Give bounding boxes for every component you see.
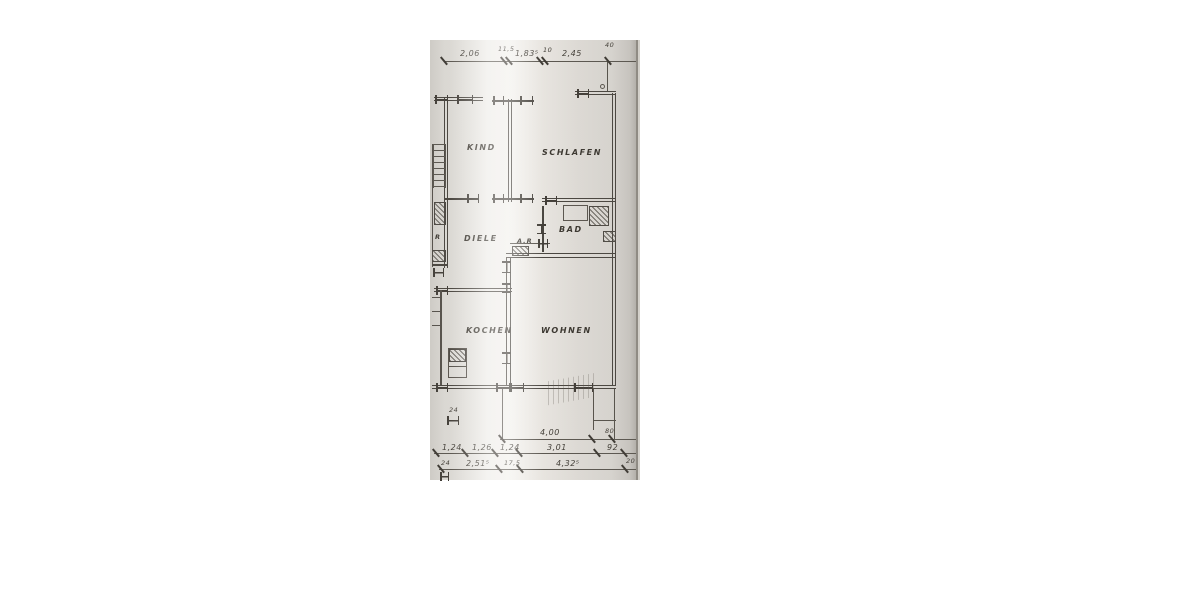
kitchen-unit-divider xyxy=(449,366,466,367)
wall-tick xyxy=(432,297,440,298)
dim-tick-pair xyxy=(447,416,459,425)
room-label-bad: BAD xyxy=(559,225,583,234)
room-label-diele: DIELE xyxy=(464,234,498,243)
floorplan-paper: 2,06 11,5 1,83⁵ 10 2,45 40 KIND SCHLAFEN xyxy=(430,40,636,480)
window-symbol xyxy=(433,268,444,277)
stair-side-line xyxy=(593,389,594,430)
room-label-wohnen: WOHNEN xyxy=(541,326,592,335)
window-symbol xyxy=(457,95,473,104)
shaft-hatch xyxy=(434,202,446,225)
dim-label: 2,06 xyxy=(460,49,480,58)
window-symbol xyxy=(436,286,448,295)
dim-label: 40 xyxy=(605,41,614,49)
dim-label: 24 xyxy=(441,459,450,467)
room-label-kochen: KOCHEN xyxy=(466,326,513,335)
dim-label: 92 xyxy=(607,443,618,452)
wall-kochen-left xyxy=(440,290,442,385)
dim-label: 20 xyxy=(626,457,635,465)
dim-label: 10 xyxy=(543,46,552,54)
room-label-ar: A.R xyxy=(517,237,533,245)
dim-label: 1,26 xyxy=(472,443,492,452)
wall-diele-bottom xyxy=(432,264,448,266)
window-symbol xyxy=(493,96,504,105)
dim-extension-line xyxy=(502,389,503,439)
window-symbol xyxy=(520,96,533,105)
wall-pier-hatch xyxy=(603,231,616,242)
stair-landing-line xyxy=(593,420,616,421)
window-symbol xyxy=(502,261,511,273)
bathtub xyxy=(563,205,588,221)
dim-label: 24 xyxy=(449,406,458,414)
dim-label: 2,45 xyxy=(562,49,582,58)
window-symbol xyxy=(496,383,512,392)
dim-tick-pair xyxy=(440,472,449,481)
dim-extension-line xyxy=(607,62,608,91)
dim-label: 2,51⁵ xyxy=(466,459,490,468)
dim-label: 1,24 xyxy=(442,443,462,452)
dim-label: 4,00 xyxy=(540,428,560,437)
wall-wohnen-top xyxy=(506,253,616,258)
wall-tick xyxy=(432,311,440,312)
shaft-hatch xyxy=(432,250,446,262)
stair-ladder xyxy=(433,144,446,188)
dim-line xyxy=(500,439,637,440)
dim-label: 11,5 xyxy=(498,45,514,53)
window-symbol xyxy=(435,95,448,104)
scanned-floorplan-page: 2,06 11,5 1,83⁵ 10 2,45 40 KIND SCHLAFEN xyxy=(0,0,1200,600)
window-symbol xyxy=(577,89,589,98)
exterior-stairs xyxy=(548,373,596,405)
wall-tick xyxy=(432,325,440,326)
shower-hatch xyxy=(589,206,609,226)
dim-label: 3,01 xyxy=(547,443,567,452)
dim-label: 17,5 xyxy=(504,459,520,467)
window-symbol xyxy=(436,383,448,392)
room-label-schlafen: SCHLAFEN xyxy=(542,148,602,157)
window-symbol xyxy=(520,194,533,203)
window-symbol xyxy=(467,194,479,203)
window-symbol xyxy=(537,224,546,234)
dim-label: 4,32⁵ xyxy=(556,459,580,468)
paper-right-edge xyxy=(636,40,640,480)
window-symbol xyxy=(502,352,511,364)
dim-line xyxy=(439,469,637,470)
dim-label: 80 xyxy=(605,427,614,435)
room-label-kind: KIND xyxy=(467,143,496,152)
dim-label: 1,24 xyxy=(500,443,520,452)
vent-circle xyxy=(600,84,605,89)
window-symbol xyxy=(493,194,504,203)
dim-label: 1,83⁵ xyxy=(515,49,539,58)
wall-kind-schlafen xyxy=(508,99,512,202)
room-label-r: R xyxy=(435,233,442,241)
kitchen-sink-hatch xyxy=(449,349,466,362)
paper-fold-shading xyxy=(430,40,636,480)
wall-wohnen-left xyxy=(506,258,511,386)
window-symbol xyxy=(538,239,548,248)
window-symbol xyxy=(545,196,557,205)
